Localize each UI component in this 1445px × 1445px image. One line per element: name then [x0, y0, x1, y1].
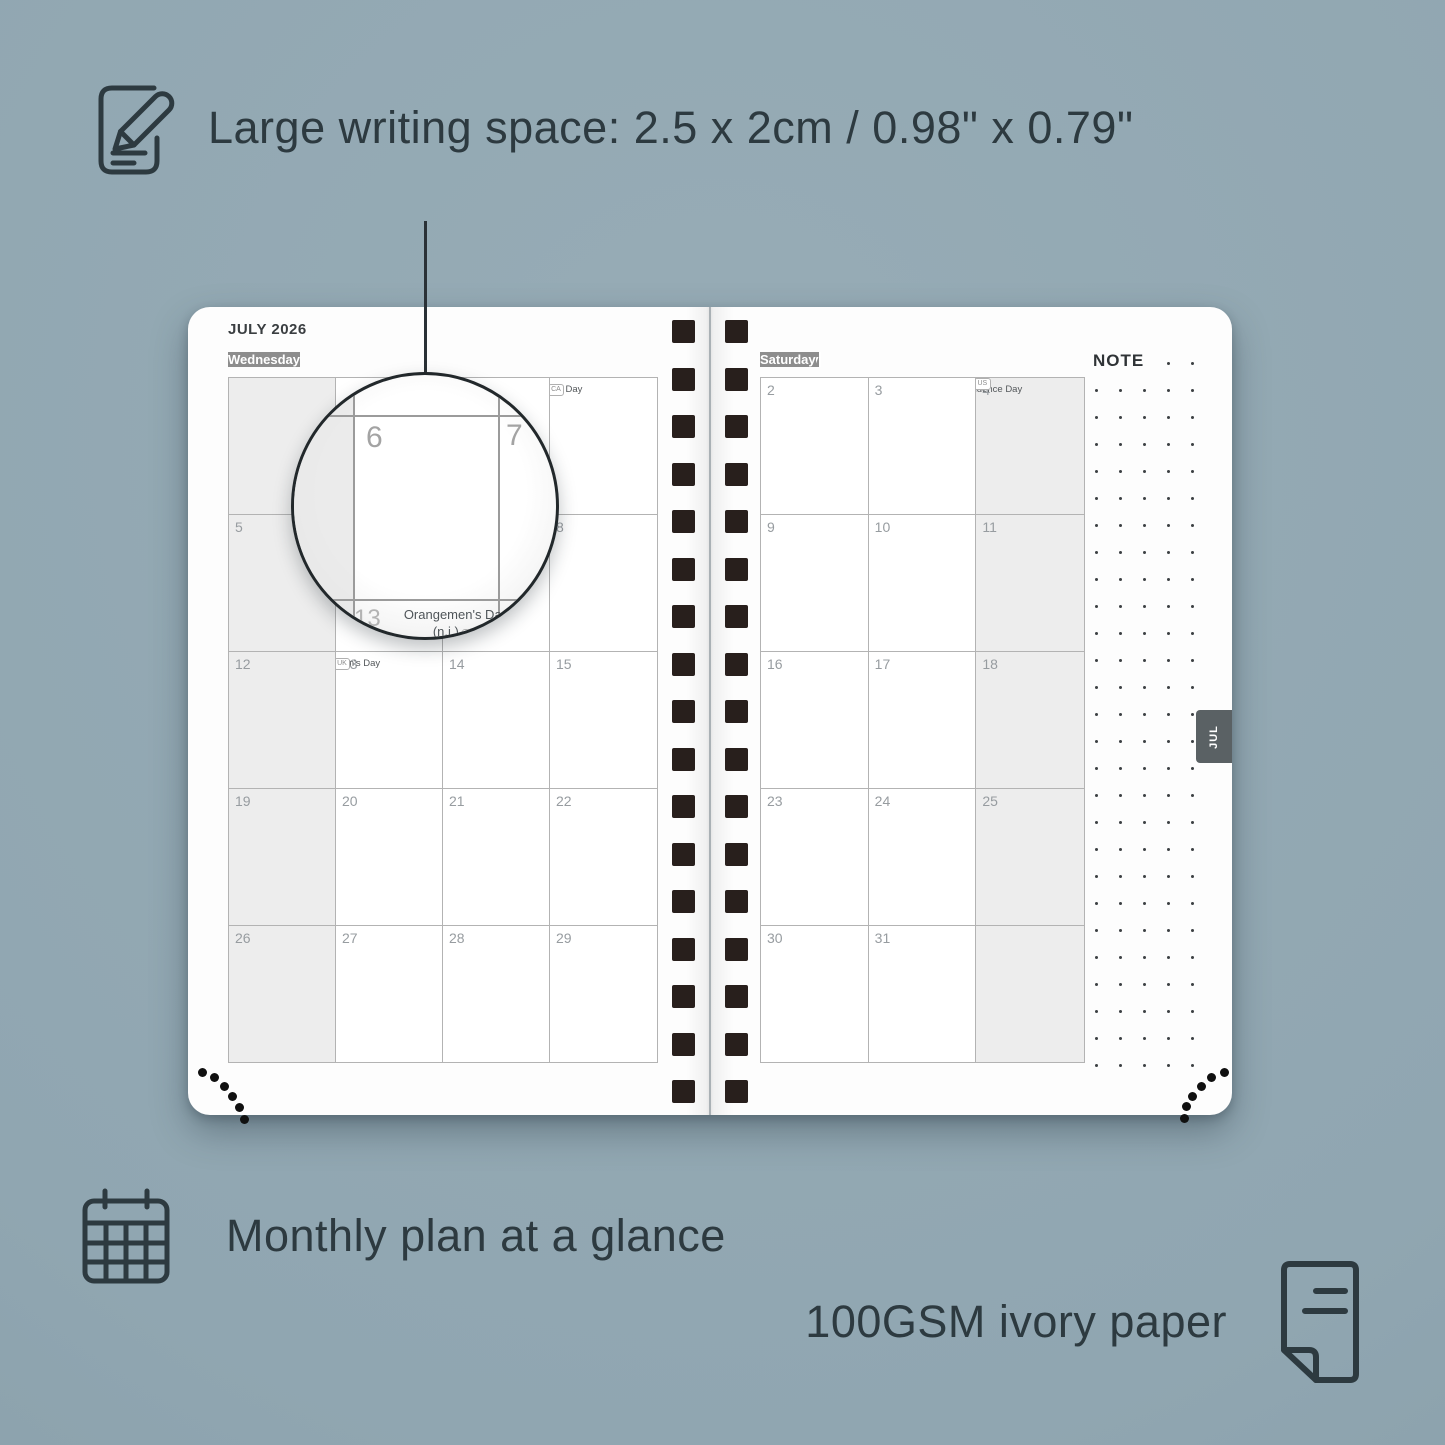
month-tab-label: JUL [1208, 725, 1220, 749]
note-dot [1143, 524, 1146, 527]
note-dot [1119, 902, 1122, 905]
perforation-dot [235, 1103, 244, 1112]
note-dot [1119, 848, 1122, 851]
note-dot [1095, 1037, 1098, 1040]
note-dot [1143, 632, 1146, 635]
day-number: 19 [235, 793, 251, 809]
calendar-cell: 3 [869, 377, 977, 514]
note-dot [1143, 659, 1146, 662]
calendar-cell: 14 [443, 651, 550, 788]
calendar-cell: 30 [761, 925, 869, 1062]
note-dot [1119, 821, 1122, 824]
calendar-cell: 16 [761, 651, 869, 788]
perforation-dot [1182, 1102, 1191, 1111]
note-dot [1167, 605, 1170, 608]
note-dot [1119, 686, 1122, 689]
day-number: 22 [556, 793, 572, 809]
note-dot [1167, 551, 1170, 554]
note-dot [1143, 713, 1146, 716]
note-dot [1167, 794, 1170, 797]
note-dot [1095, 821, 1098, 824]
note-dot [1119, 470, 1122, 473]
note-dot [1167, 929, 1170, 932]
note-dot [1191, 929, 1194, 932]
note-dot [1143, 416, 1146, 419]
perforation-dot [1180, 1114, 1189, 1123]
note-dot [1095, 686, 1098, 689]
lens-holiday-line1: Orangemen's Day [404, 607, 508, 622]
note-dot [1119, 1010, 1122, 1013]
calendar-icon [80, 1186, 172, 1286]
note-dot [1119, 794, 1122, 797]
note-dot [1167, 659, 1170, 662]
note-dot [1167, 875, 1170, 878]
calendar-cell: 25 [976, 788, 1084, 925]
note-dot [1119, 956, 1122, 959]
note-dot [1143, 929, 1146, 932]
note-dot [1167, 902, 1170, 905]
note-dot [1167, 416, 1170, 419]
note-dot [1143, 767, 1146, 770]
note-dot [1191, 362, 1194, 365]
calendar-cell: 24 [869, 788, 977, 925]
magnifier-lens: 6 7 13 Orangemen's Day (n.i.) UK [291, 372, 559, 640]
calendar-cell: 2 [761, 377, 869, 514]
note-dot [1143, 821, 1146, 824]
calendar-cell: 15 [550, 651, 657, 788]
lens-day-7: 7 [506, 419, 523, 453]
perforation-dot [1220, 1068, 1229, 1077]
calendar-cell: 21 [443, 788, 550, 925]
day-number: 26 [235, 930, 251, 946]
monthly-plan-text: Monthly plan at a glance [226, 1210, 726, 1262]
day-number: 25 [982, 793, 998, 809]
calendar-cell: 4Independence DayUS [976, 377, 1084, 514]
note-dot [1191, 902, 1194, 905]
note-dot [1119, 713, 1122, 716]
note-dot [1095, 875, 1098, 878]
calendar-cell: 1Canada DayCA [550, 377, 657, 514]
note-dot [1143, 389, 1146, 392]
note-dot [1191, 1064, 1194, 1067]
note-dot [1143, 605, 1146, 608]
note-dot [1143, 1010, 1146, 1013]
lens-pointer-line [424, 221, 427, 377]
note-dot [1143, 983, 1146, 986]
note-dot [1119, 524, 1122, 527]
day-number: 17 [875, 656, 891, 672]
paper-text: 100GSM ivory paper [805, 1296, 1227, 1348]
perforation-dot [1197, 1082, 1206, 1091]
note-dot [1119, 1064, 1122, 1067]
note-dot [1191, 875, 1194, 878]
note-dot [1095, 956, 1098, 959]
note-dot [1143, 740, 1146, 743]
note-dot [1095, 524, 1098, 527]
note-dot [1119, 551, 1122, 554]
month-tab: JUL [1196, 710, 1232, 763]
day-number: 31 [875, 930, 891, 946]
note-dot [1167, 686, 1170, 689]
note-dot [1119, 497, 1122, 500]
day-number: 28 [449, 930, 465, 946]
day-number: 21 [449, 793, 465, 809]
note-dot [1167, 767, 1170, 770]
country-badge: CA [550, 384, 564, 395]
calendar-cell: 22 [550, 788, 657, 925]
note-dot [1191, 983, 1194, 986]
day-number: 29 [556, 930, 572, 946]
day-number: 3 [875, 382, 883, 398]
note-dot [1119, 416, 1122, 419]
note-dot [1095, 767, 1098, 770]
day-number: 5 [235, 519, 243, 535]
day-number: 16 [767, 656, 783, 672]
note-dot [1191, 632, 1194, 635]
note-dot [1167, 713, 1170, 716]
perforation-dot [210, 1073, 219, 1082]
note-dot [1095, 983, 1098, 986]
note-dot [1143, 1064, 1146, 1067]
calendar-cell: 13Orangemen's Day(n.i.)UK [336, 651, 443, 788]
note-dot [1167, 1010, 1170, 1013]
note-dot [1191, 497, 1194, 500]
note-dot [1167, 470, 1170, 473]
note-dot [1095, 1010, 1098, 1013]
note-dot [1095, 848, 1098, 851]
note-dot [1143, 443, 1146, 446]
note-dot [1095, 1064, 1098, 1067]
lens-grid-line [294, 415, 556, 417]
note-dot [1191, 551, 1194, 554]
note-dot [1191, 524, 1194, 527]
calendar-cell: 11 [976, 514, 1084, 651]
note-dot [1143, 497, 1146, 500]
note-dot [1167, 443, 1170, 446]
note-dot [1119, 740, 1122, 743]
country-badge: US [976, 378, 990, 389]
note-dot [1095, 902, 1098, 905]
note-dot [1167, 956, 1170, 959]
day-number: 27 [342, 930, 358, 946]
day-header: Saturday [760, 352, 816, 367]
note-dot [1143, 902, 1146, 905]
day-number: 15 [556, 656, 572, 672]
note-dot [1095, 605, 1098, 608]
note-dot [1095, 416, 1098, 419]
pencil-note-icon [86, 76, 186, 180]
lens-grid-line [294, 599, 556, 601]
note-dot [1191, 740, 1194, 743]
calendar-cell: 19 [229, 788, 336, 925]
note-dot [1095, 551, 1098, 554]
note-dot [1143, 578, 1146, 581]
paper-callout: 100GSM ivory paper [805, 1258, 1363, 1386]
note-dot [1191, 416, 1194, 419]
day-number: 2 [767, 382, 775, 398]
note-dot [1167, 578, 1170, 581]
note-dot [1119, 605, 1122, 608]
note-dot [1095, 497, 1098, 500]
note-dot [1119, 929, 1122, 932]
day-number: 14 [449, 656, 465, 672]
day-header: Wednesday [228, 352, 300, 367]
note-dot [1095, 578, 1098, 581]
calendar-cell: 18 [976, 651, 1084, 788]
note-dot [1191, 794, 1194, 797]
note-dot [1191, 767, 1194, 770]
note-dot [1095, 929, 1098, 932]
lens-day-6: 6 [366, 421, 383, 455]
calendar-cell: 29 [550, 925, 657, 1062]
day-number: 9 [767, 519, 775, 535]
note-dot [1143, 875, 1146, 878]
calendar-cell: 8 [550, 514, 657, 651]
perforation-dot [1188, 1092, 1197, 1101]
calendar-cell: 26 [229, 925, 336, 1062]
perforation-dot [220, 1082, 229, 1091]
note-dot [1119, 875, 1122, 878]
calendar-cell: 9 [761, 514, 869, 651]
note-dot [1143, 848, 1146, 851]
note-dot [1191, 659, 1194, 662]
perforation-dot [1207, 1073, 1216, 1082]
perforation-dot [228, 1092, 237, 1101]
note-dot [1191, 1037, 1194, 1040]
note-dot [1119, 389, 1122, 392]
note-dot [1095, 389, 1098, 392]
note-dot [1167, 740, 1170, 743]
note-dot [1095, 470, 1098, 473]
note-dot [1095, 659, 1098, 662]
month-title: JULY 2026 [228, 321, 307, 338]
writing-space-text: Large writing space: 2.5 x 2cm / 0.98" x… [208, 102, 1133, 154]
perforation-dot [198, 1068, 207, 1077]
note-dot [1167, 848, 1170, 851]
lens-holiday-label: Orangemen's Day (n.i.) UK [386, 607, 526, 640]
day-number: 10 [875, 519, 891, 535]
day-number: 20 [342, 793, 358, 809]
note-dot [1167, 389, 1170, 392]
calendar-cell: 12 [229, 651, 336, 788]
monthly-plan-callout: Monthly plan at a glance [80, 1186, 726, 1286]
note-dot [1119, 983, 1122, 986]
note-dot [1143, 470, 1146, 473]
note-dot [1119, 659, 1122, 662]
note-dot [1167, 497, 1170, 500]
note-dot [1191, 1010, 1194, 1013]
writing-space-callout: Large writing space: 2.5 x 2cm / 0.98" x… [86, 76, 1133, 180]
note-dot [1191, 443, 1194, 446]
note-label: NOTE [1093, 351, 1148, 371]
calendar-cell [976, 925, 1084, 1062]
calendar-cell: 27 [336, 925, 443, 1062]
day-number: 11 [982, 519, 997, 535]
note-dot [1167, 1037, 1170, 1040]
calendar-cell: 28 [443, 925, 550, 1062]
day-number: 30 [767, 930, 783, 946]
perforation-dot [240, 1115, 249, 1124]
country-badge: UK [336, 658, 350, 669]
note-dot [1095, 443, 1098, 446]
note-dot [1119, 443, 1122, 446]
note-dot [1143, 1037, 1146, 1040]
note-dot [1143, 551, 1146, 554]
day-number: 18 [982, 656, 998, 672]
day-number: 12 [235, 656, 251, 672]
paper-icon [1271, 1258, 1363, 1386]
note-dot [1119, 767, 1122, 770]
calendar-cell: 31 [869, 925, 977, 1062]
note-dot [1167, 362, 1170, 365]
note-dot [1191, 605, 1194, 608]
note-dot [1167, 821, 1170, 824]
note-dot [1143, 794, 1146, 797]
calendar-cell: 23 [761, 788, 869, 925]
note-dot [1167, 983, 1170, 986]
note-dot [1191, 686, 1194, 689]
page-crease [709, 307, 711, 1115]
note-dot [1191, 713, 1194, 716]
note-dot [1143, 956, 1146, 959]
note-dot [1167, 632, 1170, 635]
note-dot [1167, 524, 1170, 527]
note-dot [1191, 848, 1194, 851]
note-dot [1095, 740, 1098, 743]
calendar-cell: 20 [336, 788, 443, 925]
note-dot [1143, 686, 1146, 689]
note-dot [1119, 1037, 1122, 1040]
note-dot [1191, 821, 1194, 824]
day-number: 24 [875, 793, 891, 809]
calendar-cell: 17 [869, 651, 977, 788]
note-dot [1191, 956, 1194, 959]
lens-holiday-line2: (n.i.) [433, 624, 459, 639]
note-dot [1167, 1064, 1170, 1067]
note-dot [1191, 470, 1194, 473]
product-image: Large writing space: 2.5 x 2cm / 0.98" x… [0, 0, 1445, 1445]
note-dot [1095, 632, 1098, 635]
day-number: 23 [767, 793, 783, 809]
calendar-cell: 10 [869, 514, 977, 651]
note-dot [1095, 794, 1098, 797]
right-page-calendar: ThursdayFridaySaturday234Independence Da… [760, 352, 1085, 1063]
note-dot [1095, 713, 1098, 716]
note-dot [1191, 578, 1194, 581]
note-dot [1119, 632, 1122, 635]
lens-day-13: 13 [354, 605, 381, 633]
note-dot [1191, 389, 1194, 392]
note-dot [1119, 578, 1122, 581]
